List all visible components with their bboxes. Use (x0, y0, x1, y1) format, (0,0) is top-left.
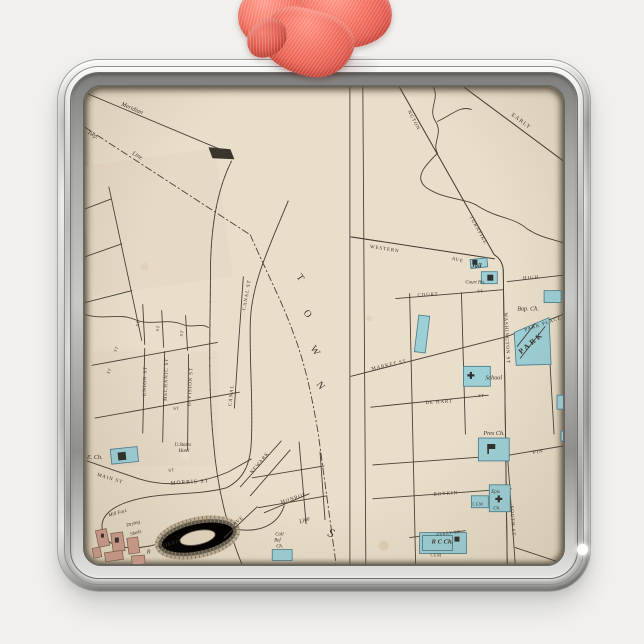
episcopal-church-label: Ch. (493, 507, 500, 512)
edge-building (561, 431, 563, 441)
right-map-panel: NGTON TURNPIKE EARLY WESTERN AVE Jail Co… (351, 87, 563, 563)
town-letter: O (301, 308, 314, 320)
de-hart-st-label: DE HART (425, 399, 453, 406)
east-church-label: E. Ch. (86, 455, 103, 461)
creek-branch (438, 108, 472, 121)
jail-label: Jail (470, 263, 481, 270)
creek (85, 315, 208, 328)
cem-label: CEM (431, 553, 442, 558)
mill-label: Mill Fact. (107, 508, 128, 518)
hotel-label: Hotel (178, 449, 190, 454)
coll-ref-church-building (272, 550, 292, 561)
presbyterian-church-building (478, 438, 509, 461)
st-label: ST (477, 289, 483, 294)
town-letter: T (294, 272, 306, 283)
canal-st-label: CANAL ST (242, 279, 252, 311)
seminary-building (414, 315, 429, 353)
early-st-label: EARLY (510, 112, 532, 131)
st-label: ST (179, 330, 185, 337)
rc-church-mark (454, 537, 459, 542)
union-st-label: UNION ST (143, 366, 149, 396)
ave-label: AVE (451, 257, 464, 265)
coll-ref-church-label: Ref (273, 539, 281, 544)
meridian-line (87, 93, 229, 153)
monroe-st-label: MONROE (280, 493, 307, 506)
court-house-mark (487, 275, 493, 281)
morris-st-label: MORRIS ST (170, 478, 209, 487)
school-label: School (485, 375, 502, 381)
edge-building (557, 395, 563, 409)
creek (421, 87, 563, 254)
st-label: ST (168, 467, 175, 473)
ornament-frame: Meridian Twp. Line ST ST ST ST ST ST UNI… (57, 59, 591, 592)
turnpike-label: TURNPIKE (468, 215, 488, 245)
twp-label: Twp. (86, 130, 99, 141)
presbyterian-church-label: Pres Ch. (482, 431, 504, 437)
coll-ref-church-label: Coll (275, 533, 284, 538)
st-label: ST (135, 320, 141, 327)
st-label: ST (478, 393, 484, 398)
boykin-st-label: BOYKIN (433, 491, 458, 498)
washington-st-label: WASHINGTON ST (502, 312, 510, 364)
right-street-grid (351, 272, 563, 564)
drying-sheds-label: Sheds (130, 530, 142, 538)
court-st-label: COURT (417, 293, 438, 299)
pond (208, 147, 234, 159)
south-st-label: SOUTH ST (508, 506, 515, 537)
st-label: ST (155, 325, 161, 332)
rc-church-label: R C Ch. (431, 539, 454, 546)
baptist-church-building (544, 291, 561, 303)
west-boundary-street (363, 87, 366, 563)
early-road (464, 87, 563, 182)
s-letter: S (326, 525, 336, 540)
cem-label: CEM (472, 502, 483, 507)
town-letter: W (308, 344, 323, 359)
st-label: ST (173, 405, 180, 411)
town-letter: N (314, 380, 327, 392)
court-house-label: Court Ho. (465, 281, 485, 286)
left-map-panel: Meridian Twp. Line ST ST ST ST ST ST UNI… (85, 93, 336, 564)
drying-sheds-label: Drying (125, 520, 141, 529)
frame-inner-ring: Meridian Twp. Line ST ST ST ST ST ST UNI… (64, 66, 584, 585)
frame-reflection-highlight (577, 544, 588, 555)
newark-st-label: NEWARK (250, 452, 271, 476)
episcopal-church-label: Epis (490, 490, 500, 495)
ave-label: AVE (233, 516, 246, 527)
line-label: Line (298, 516, 312, 526)
western-ave-label: WESTERN (369, 245, 399, 255)
town-boundary (250, 235, 336, 564)
pine-st-label: PIN (533, 449, 544, 456)
r-letter: R (146, 550, 151, 556)
baptist-church-label: Bap. Ch. (517, 307, 539, 313)
main-st-label: MAIN ST (96, 473, 123, 486)
market-st-label: MARKET ST (371, 359, 407, 372)
hotel-label: U.States (175, 443, 191, 448)
high-st-label: HIGH (523, 276, 539, 282)
map-window: Meridian Twp. Line ST ST ST ST ST ST UNI… (83, 85, 565, 566)
product-photo: Meridian Twp. Line ST ST ST ST ST ST UNI… (0, 0, 644, 644)
coll-ref-church-label: Ch. (276, 545, 283, 550)
map-print: Meridian Twp. Line ST ST ST ST ST ST UNI… (85, 87, 563, 564)
frame-groove: Meridian Twp. Line ST ST ST ST ST ST UNI… (70, 72, 578, 579)
ribbon-knot (236, 0, 398, 82)
church-roof-mark (118, 452, 127, 461)
